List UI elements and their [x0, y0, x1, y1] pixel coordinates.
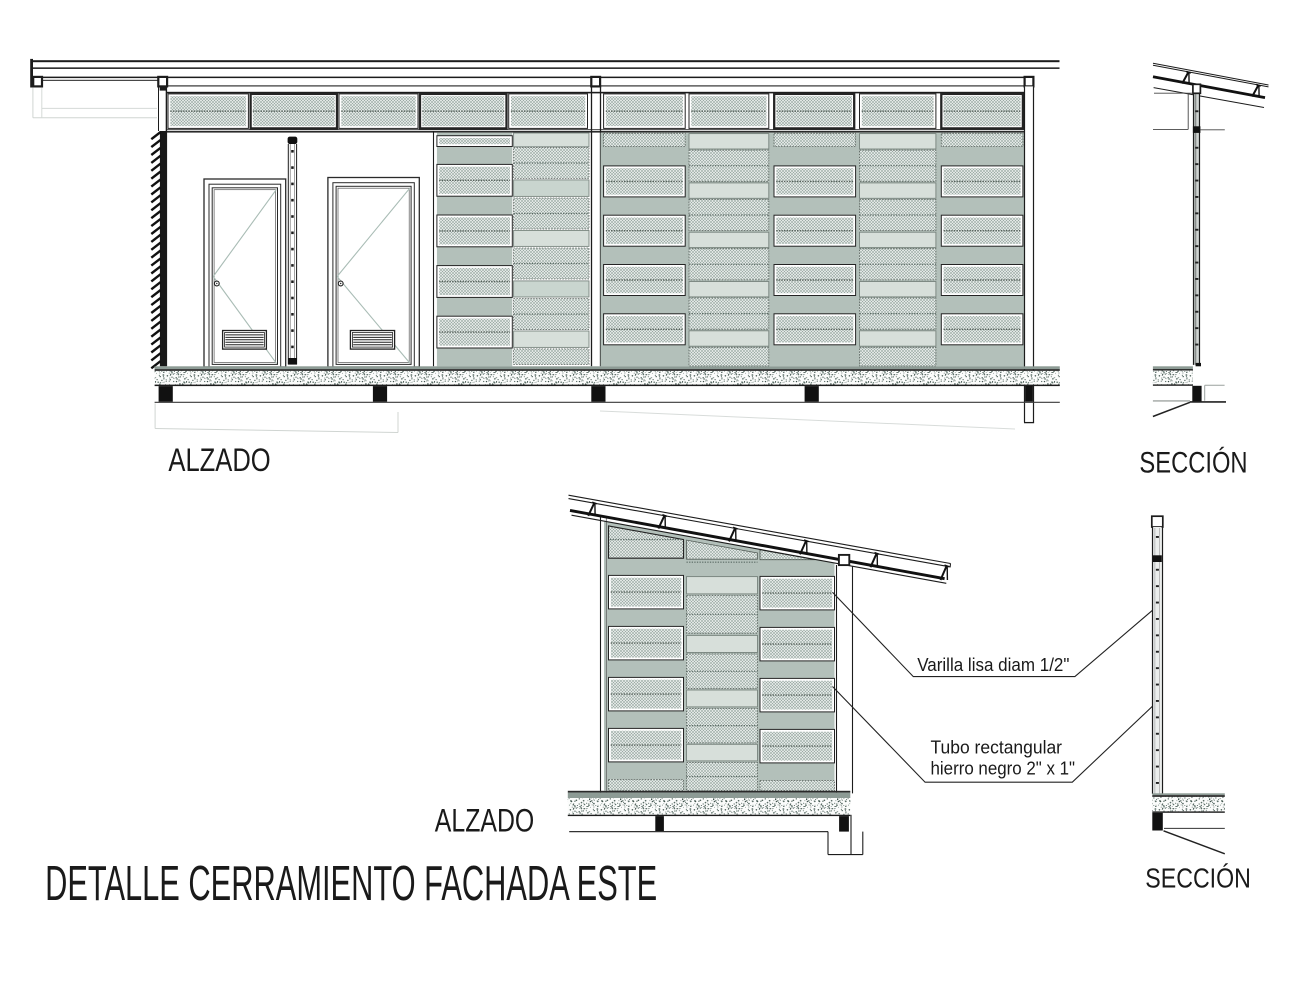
svg-text:SECCIÓN: SECCIÓN [1139, 445, 1247, 479]
svg-text:hierro negro 2" x 1": hierro negro 2" x 1" [931, 758, 1076, 779]
svg-text:Varilla lisa diam 1/2": Varilla lisa diam 1/2" [917, 654, 1069, 675]
svg-text:ALZADO: ALZADO [168, 443, 270, 479]
svg-text:ALZADO: ALZADO [435, 803, 534, 839]
svg-text:Tubo rectangular: Tubo rectangular [931, 737, 1063, 758]
svg-text:SECCIÓN: SECCIÓN [1145, 863, 1251, 894]
svg-text:DETALLE CERRAMIENTO FACHADA ES: DETALLE CERRAMIENTO FACHADA ESTE [45, 856, 657, 911]
